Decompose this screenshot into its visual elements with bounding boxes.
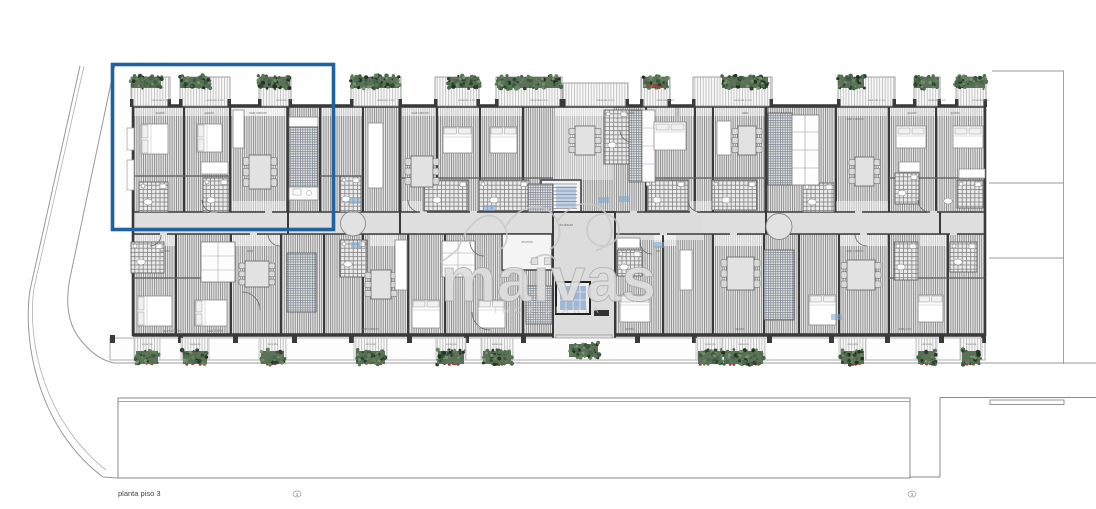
svg-text:varanda: varanda <box>446 342 457 346</box>
svg-text:varanda 2.1m: varanda 2.1m <box>867 98 886 102</box>
svg-text:sala com: sala com <box>899 327 912 331</box>
svg-text:quarto: quarto <box>950 111 959 115</box>
svg-text:quarto: quarto <box>155 111 164 115</box>
svg-text:varanda: varanda <box>921 342 932 346</box>
svg-text:varanda: varanda <box>267 342 278 346</box>
svg-text:sala: sala <box>742 111 748 115</box>
svg-text:varanda: varanda <box>365 342 376 346</box>
svg-text:sala 20.9m: sala 20.9m <box>207 329 223 333</box>
svg-text:varanda 2.1m: varanda 2.1m <box>151 98 170 102</box>
svg-text:varanda: varanda <box>966 342 977 346</box>
svg-text:varanda: varanda <box>190 342 201 346</box>
svg-text:varanda 2.1m: varanda 2.1m <box>377 98 396 102</box>
svg-text:quarto: quarto <box>735 327 744 331</box>
svg-text:varanda 2.1m: varanda 2.1m <box>206 98 225 102</box>
svg-text:sala comum: sala comum <box>846 249 864 253</box>
svg-text:varanda 2.1m: varanda 2.1m <box>596 98 615 102</box>
svg-text:varanda 2.1m: varanda 2.1m <box>530 98 549 102</box>
svg-text:quarto: quarto <box>625 111 634 115</box>
svg-text:sala: sala <box>247 249 253 253</box>
svg-text:sala comum: sala comum <box>846 117 864 121</box>
svg-text:sala comum: sala comum <box>361 327 379 331</box>
svg-text:varanda: varanda <box>142 342 153 346</box>
svg-text:quarto: quarto <box>204 111 213 115</box>
svg-text:varanda 2.1m: varanda 2.1m <box>276 98 295 102</box>
svg-text:planta piso 3: planta piso 3 <box>118 489 161 498</box>
svg-text:arrumos: arrumos <box>521 240 533 244</box>
svg-text:circulacao: circulacao <box>559 223 574 227</box>
svg-text:varanda: varanda <box>705 342 716 346</box>
svg-text:varanda 2.1m: varanda 2.1m <box>928 98 947 102</box>
svg-text:varanda: varanda <box>738 342 749 346</box>
svg-text:quarto 11.3m: quarto 11.3m <box>163 329 182 333</box>
svg-text:varanda 2.1m: varanda 2.1m <box>656 98 675 102</box>
svg-text:sala comum: sala comum <box>411 111 429 115</box>
svg-text:varanda: varanda <box>492 342 503 346</box>
svg-text:varanda 2.1m: varanda 2.1m <box>972 98 991 102</box>
svg-text:sala comum: sala comum <box>249 111 267 115</box>
svg-text:IMOBILIÁRIA: IMOBILIÁRIA <box>494 305 603 315</box>
svg-text:quarto: quarto <box>160 249 169 253</box>
svg-text:quarto: quarto <box>625 327 634 331</box>
svg-text:quarto: quarto <box>907 111 916 115</box>
svg-text:varanda 2.1m: varanda 2.1m <box>733 98 752 102</box>
svg-text:varanda 2.1m: varanda 2.1m <box>458 98 477 102</box>
svg-text:varanda: varanda <box>847 342 858 346</box>
